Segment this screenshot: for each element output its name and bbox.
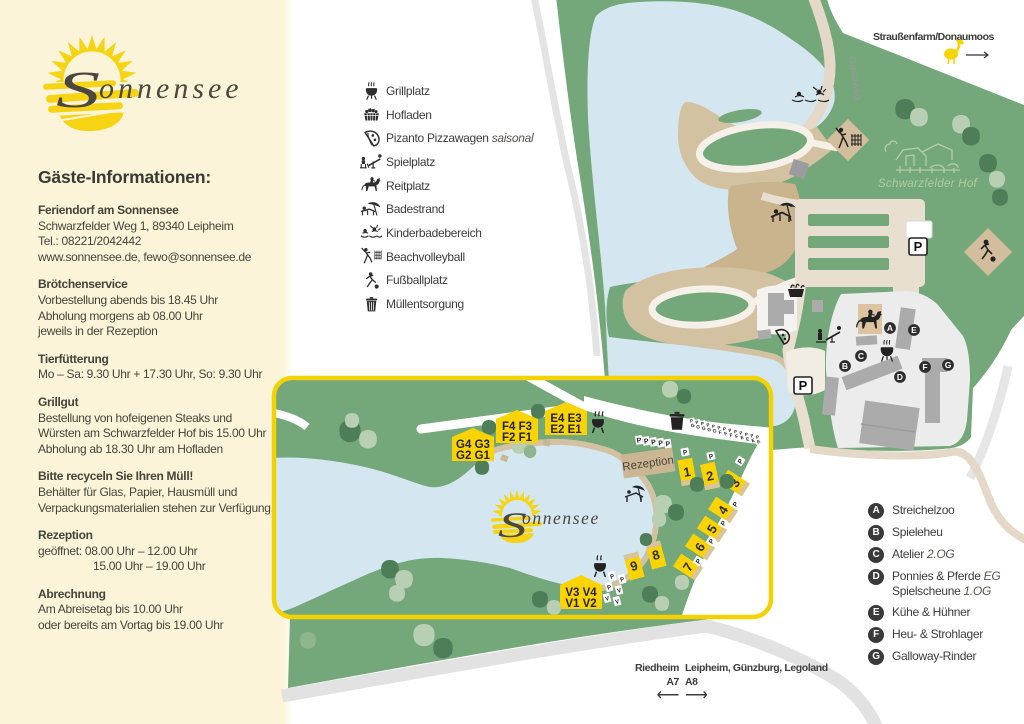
svg-text:B: B (842, 361, 848, 371)
svg-text:E2 E1: E2 E1 (550, 424, 582, 436)
svg-text:Schwarzfelder Hof: Schwarzfelder Hof (878, 178, 979, 190)
svg-text:D: D (897, 372, 903, 382)
svg-text:onnensee: onnensee (522, 508, 600, 528)
svg-text:F: F (922, 362, 927, 372)
svg-text:G2 G1: G2 G1 (456, 450, 490, 462)
svg-text:Straußenfarm/Donaumoos: Straußenfarm/Donaumoos (873, 31, 995, 43)
svg-text:A: A (887, 323, 893, 333)
svg-text:G: G (945, 360, 952, 370)
svg-text:E: E (911, 325, 917, 335)
svg-text:P: P (914, 239, 923, 254)
svg-text:F2 F1: F2 F1 (502, 432, 533, 444)
svg-text:C: C (858, 351, 864, 361)
svg-text:V1 V2: V1 V2 (565, 598, 596, 610)
svg-text:P: P (799, 378, 808, 393)
